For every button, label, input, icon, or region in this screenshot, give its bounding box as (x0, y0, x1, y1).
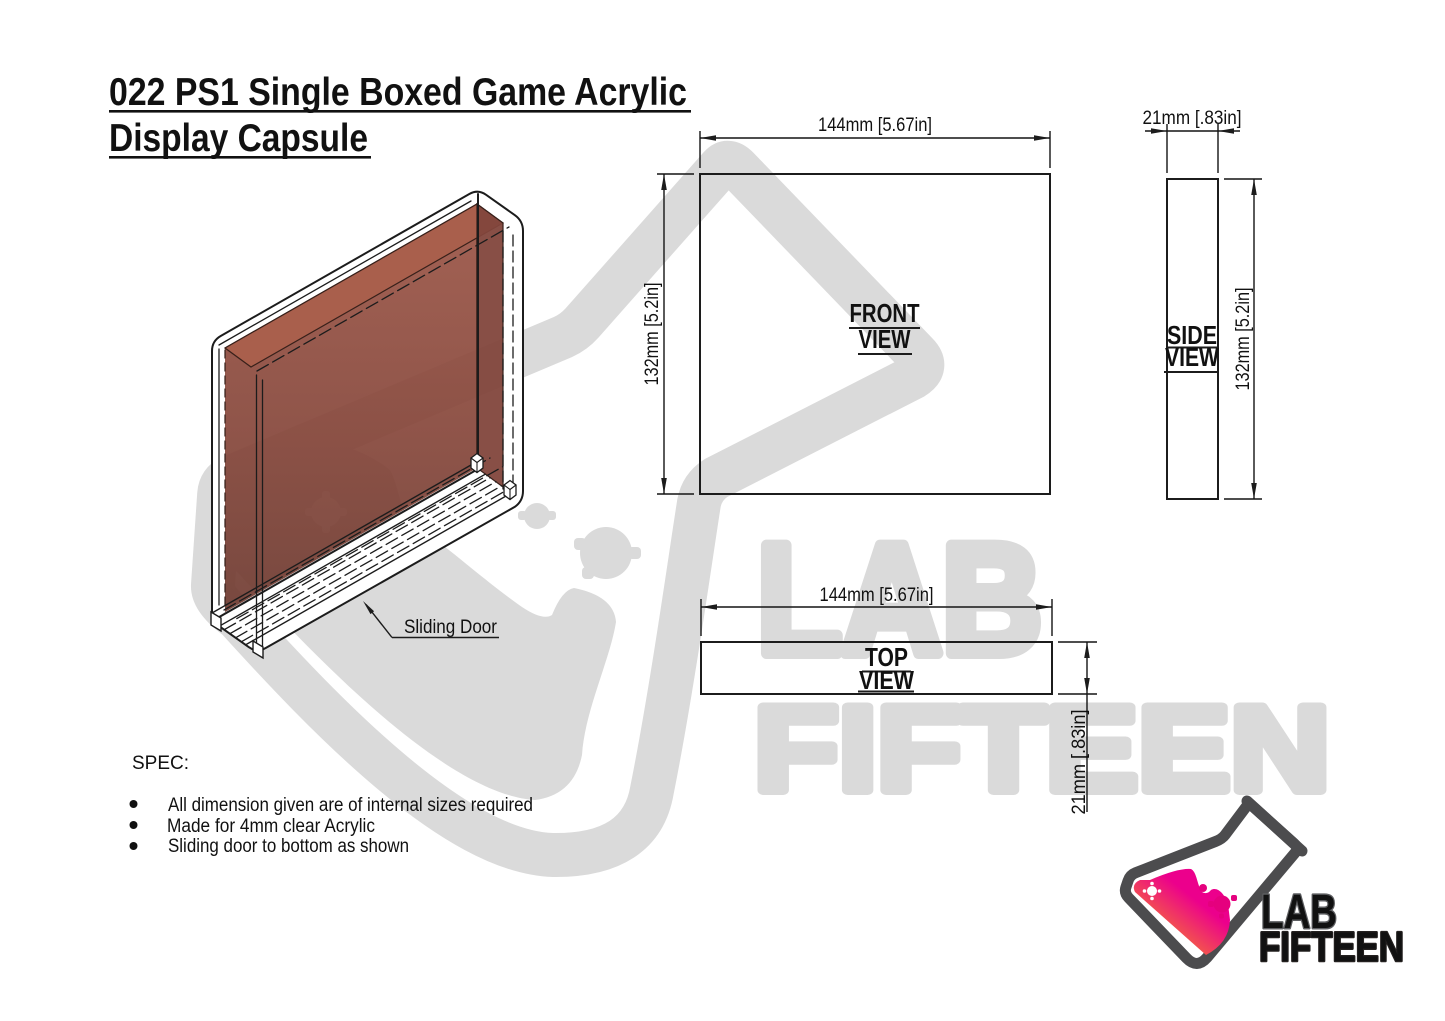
svg-text:132mm [5.2in]: 132mm [5.2in] (641, 283, 663, 386)
svg-text:144mm [5.67in]: 144mm [5.67in] (818, 114, 932, 136)
svg-text:Display Capsule: Display Capsule (109, 117, 368, 160)
svg-text:144mm [5.67in]: 144mm [5.67in] (820, 584, 934, 606)
svg-text:Sliding Door: Sliding Door (404, 616, 497, 638)
svg-text:SPEC:: SPEC: (132, 753, 189, 774)
svg-text:21mm [.83in]: 21mm [.83in] (1143, 107, 1242, 129)
svg-text:VIEW: VIEW (1165, 342, 1219, 372)
svg-text:132mm [5.2in]: 132mm [5.2in] (1232, 288, 1254, 391)
svg-text:022 PS1 Single Boxed Game Acry: 022 PS1 Single Boxed Game Acrylic (109, 71, 687, 114)
svg-text:FIFTEEN: FIFTEEN (1259, 923, 1404, 970)
svg-text:FIFTEEN: FIFTEEN (754, 682, 1330, 816)
svg-text:VIEW: VIEW (859, 324, 911, 354)
svg-text:All dimension given are of int: All dimension given are of internal size… (168, 795, 533, 816)
svg-text:21mm [.83in]: 21mm [.83in] (1068, 710, 1090, 815)
svg-text:Sliding door to bottom as show: Sliding door to bottom as shown (168, 836, 409, 857)
svg-text:Made for 4mm clear Acrylic: Made for 4mm clear Acrylic (167, 816, 375, 837)
